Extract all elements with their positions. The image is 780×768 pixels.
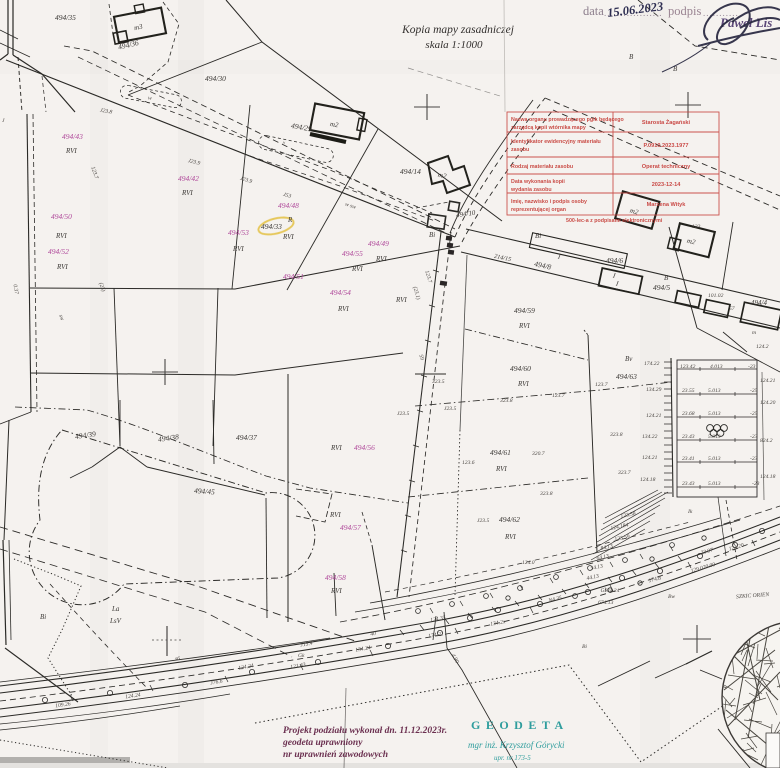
- svg-text:174.22: 174.22: [644, 361, 660, 367]
- svg-text:RVI: RVI: [330, 444, 342, 452]
- svg-text:323.8: 323.8: [499, 398, 513, 404]
- svg-text:RVI: RVI: [330, 587, 342, 595]
- svg-text:124.21: 124.21: [642, 455, 658, 461]
- svg-text:-23: -23: [750, 434, 758, 440]
- svg-text:Kopia mapy zasadniczej: Kopia mapy zasadniczej: [401, 24, 514, 36]
- svg-text:494/62: 494/62: [499, 515, 520, 524]
- svg-text:494/60: 494/60: [510, 364, 531, 373]
- svg-text:podpis: podpis: [668, 4, 701, 18]
- svg-text:123.42: 123.42: [680, 364, 696, 370]
- svg-text:s6: s6: [175, 656, 180, 662]
- svg-text:Bi: Bi: [429, 231, 435, 239]
- svg-text:23.68: 23.68: [682, 411, 695, 417]
- svg-text:GEODETA: GEODETA: [471, 718, 569, 732]
- svg-text:Bi: Bi: [582, 644, 587, 650]
- svg-text:494/6: 494/6: [606, 256, 623, 265]
- svg-text:494/33: 494/33: [261, 222, 282, 231]
- svg-text:23.41: 23.41: [682, 456, 695, 462]
- svg-text:134.29: 134.29: [646, 387, 662, 393]
- svg-text:494/30: 494/30: [205, 74, 226, 83]
- svg-text:Rodzaj materiału zasobu: Rodzaj materiału zasobu: [511, 164, 573, 170]
- svg-text:5.013: 5.013: [708, 456, 721, 462]
- svg-text:Operat techniczny: Operat techniczny: [642, 164, 691, 170]
- svg-text:RVI: RVI: [495, 465, 507, 473]
- svg-text:reprezentującej organ: reprezentującej organ: [511, 207, 566, 213]
- svg-text:RVI: RVI: [395, 296, 407, 304]
- svg-text:RVI: RVI: [518, 322, 530, 330]
- svg-text:RVI: RVI: [55, 232, 67, 240]
- svg-text:494/63: 494/63: [616, 372, 637, 381]
- svg-text:Gk: Gk: [298, 653, 305, 659]
- svg-text:Data wykonania kopii: Data wykonania kopii: [511, 179, 565, 185]
- svg-text:J23.5: J23.5: [477, 518, 489, 524]
- svg-text:zasobu: zasobu: [511, 147, 529, 153]
- svg-text:LsV: LsV: [109, 617, 122, 625]
- svg-text:23.43: 23.43: [682, 434, 695, 440]
- svg-text:494/61: 494/61: [490, 448, 511, 457]
- svg-text:5.013: 5.013: [708, 411, 721, 417]
- svg-text:Bi: Bi: [535, 232, 541, 240]
- svg-text:Projekt podziału wykonał dn. 1: Projekt podziału wykonał dn. 11.12.2023r…: [283, 726, 447, 736]
- svg-text:Imię, nazwisko i podpis osoby: Imię, nazwisko i podpis osoby: [511, 199, 587, 205]
- svg-text:-25: -25: [750, 388, 758, 394]
- svg-text:123.6: 123.6: [462, 460, 475, 466]
- svg-text:zarządcą kopii wtórnika mapy: zarządcą kopii wtórnika mapy: [511, 125, 586, 131]
- svg-text:5.013: 5.013: [708, 388, 721, 394]
- svg-text:RVI: RVI: [351, 265, 363, 273]
- svg-text:123.7: 123.7: [552, 393, 565, 399]
- svg-text:124.18: 124.18: [640, 477, 656, 483]
- svg-text:323.5: 323.5: [431, 379, 445, 385]
- svg-text:Bi: Bi: [40, 613, 46, 621]
- svg-text:123: 123: [692, 224, 701, 230]
- svg-text:RVI: RVI: [517, 380, 529, 388]
- svg-text:824.2: 824.2: [760, 438, 773, 444]
- svg-text:RVI: RVI: [56, 263, 68, 271]
- svg-text:57: 57: [729, 306, 735, 312]
- svg-text:4.013: 4.013: [710, 364, 723, 370]
- svg-text:134.22: 134.22: [642, 434, 658, 440]
- svg-text:494/14: 494/14: [400, 167, 421, 176]
- svg-text:494/35: 494/35: [55, 13, 76, 22]
- svg-text:124.2: 124.2: [756, 344, 769, 350]
- svg-text:5.013: 5.013: [708, 481, 721, 487]
- svg-text:Nazwa organu prowadzącego pgik: Nazwa organu prowadzącego pgik będącego: [511, 117, 624, 123]
- svg-text:P.0910.2023.1977: P.0910.2023.1977: [643, 143, 688, 149]
- svg-text:5.013: 5.013: [708, 434, 721, 440]
- svg-text:m: m: [752, 330, 756, 336]
- svg-text:124.20: 124.20: [760, 400, 776, 406]
- svg-text:494/59: 494/59: [514, 306, 535, 315]
- svg-text:494/54: 494/54: [330, 288, 351, 297]
- svg-text:323.8: 323.8: [539, 491, 553, 497]
- svg-text:R: R: [287, 216, 293, 224]
- svg-text:494/53: 494/53: [228, 228, 249, 237]
- svg-text:wydania zasobu: wydania zasobu: [510, 187, 552, 193]
- svg-text:494/58: 494/58: [325, 573, 346, 582]
- svg-text:La: La: [111, 605, 120, 613]
- svg-text:Marzena Wityk: Marzena Wityk: [647, 202, 687, 208]
- svg-text:123.7: 123.7: [595, 382, 608, 388]
- svg-text:500-lec-a z podpisami elektron: 500-lec-a z podpisami elektronicznymi: [566, 218, 663, 224]
- svg-text:323.7: 323.7: [617, 470, 631, 476]
- svg-text:494/4: 494/4: [751, 299, 767, 307]
- svg-text:skala 1:1000: skala 1:1000: [425, 39, 483, 51]
- svg-text:323.8: 323.8: [609, 432, 623, 438]
- svg-text:geodeta uprawniony: geodeta uprawniony: [282, 738, 363, 748]
- svg-text:2023-12-14: 2023-12-14: [652, 182, 682, 188]
- svg-text:320.7: 320.7: [531, 451, 545, 457]
- svg-text:RVI: RVI: [375, 255, 387, 263]
- svg-text:RVI: RVI: [504, 533, 516, 541]
- svg-text:494/55: 494/55: [342, 249, 363, 258]
- svg-text:124.21: 124.21: [760, 378, 776, 384]
- svg-text:-23: -23: [750, 456, 758, 462]
- svg-text:nr uprawnień zawodowych: nr uprawnień zawodowych: [283, 750, 388, 760]
- svg-text:124.18: 124.18: [760, 474, 776, 480]
- svg-text:Bv: Bv: [625, 355, 633, 363]
- svg-text:674.13: 674.13: [598, 600, 614, 606]
- svg-text:101.02: 101.02: [708, 293, 724, 299]
- svg-text:J23.5: J23.5: [444, 406, 456, 412]
- svg-text:494/56: 494/56: [354, 443, 375, 452]
- svg-text:J23.5: J23.5: [397, 411, 409, 417]
- svg-text:RVI: RVI: [65, 147, 77, 155]
- svg-text:B: B: [664, 274, 669, 282]
- svg-text:RVI: RVI: [181, 189, 193, 197]
- svg-text:494/52: 494/52: [48, 247, 69, 256]
- svg-text:RVI: RVI: [337, 305, 349, 313]
- svg-text:RVI: RVI: [282, 233, 294, 241]
- svg-text:Identyfikator ewidencyjny mate: Identyfikator ewidencyjny materiału: [511, 139, 601, 145]
- svg-text:494/50: 494/50: [51, 212, 72, 221]
- svg-text:494/5: 494/5: [653, 283, 670, 292]
- svg-text:mgr inż. Krzysztof Górycki: mgr inż. Krzysztof Górycki: [468, 740, 565, 750]
- svg-text:494/37: 494/37: [236, 433, 257, 442]
- svg-text:494/51: 494/51: [283, 272, 304, 281]
- svg-text:upr. nr 173-5: upr. nr 173-5: [494, 754, 531, 762]
- svg-text:23.55: 23.55: [682, 388, 695, 394]
- svg-text:494/49: 494/49: [368, 239, 389, 248]
- svg-text:494/48: 494/48: [278, 201, 299, 210]
- svg-text:Starosta Żagański: Starosta Żagański: [642, 119, 691, 126]
- svg-text:23.43: 23.43: [682, 481, 695, 487]
- svg-text:124.0: 124.0: [522, 560, 535, 566]
- svg-text:RVI: RVI: [329, 511, 341, 519]
- svg-text:494/57: 494/57: [340, 523, 361, 532]
- svg-text:-23: -23: [748, 364, 756, 370]
- svg-text:RVI: RVI: [232, 245, 244, 253]
- svg-text:Bw: Bw: [668, 594, 675, 600]
- svg-text:494/43: 494/43: [62, 132, 83, 141]
- svg-text:-25: -25: [750, 411, 758, 417]
- svg-text:data: data: [583, 4, 604, 18]
- svg-text:124.21: 124.21: [646, 413, 662, 419]
- svg-text:-23: -23: [752, 481, 760, 487]
- svg-text:494/45: 494/45: [194, 486, 216, 496]
- svg-text:B: B: [629, 53, 634, 61]
- svg-text:Ik: Ik: [687, 509, 693, 515]
- svg-text:494/42: 494/42: [178, 174, 199, 183]
